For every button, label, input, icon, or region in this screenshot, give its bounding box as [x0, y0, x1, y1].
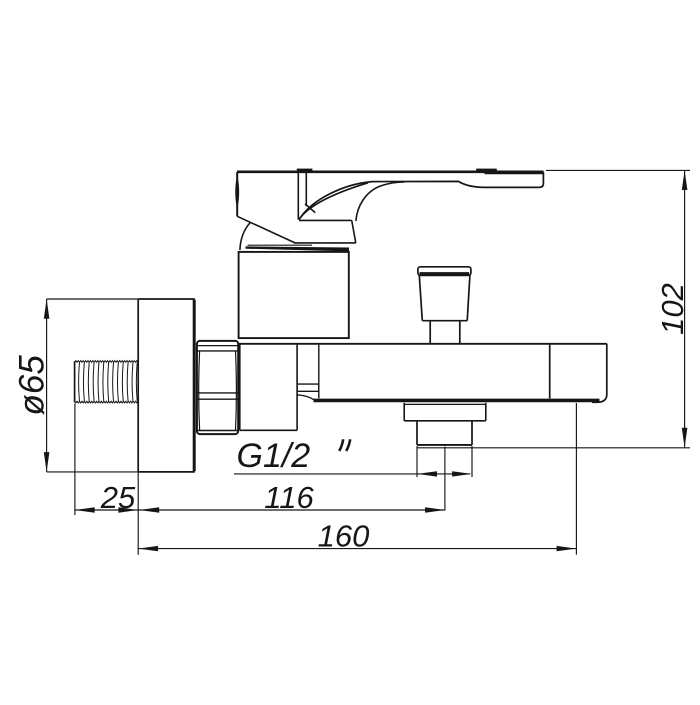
- svg-text:G1/2: G1/2: [237, 437, 311, 475]
- svg-text:ø65: ø65: [13, 355, 52, 416]
- svg-text:102: 102: [655, 283, 690, 335]
- svg-text:25: 25: [100, 480, 136, 515]
- svg-text:116: 116: [264, 480, 314, 515]
- svg-text:160: 160: [318, 518, 370, 553]
